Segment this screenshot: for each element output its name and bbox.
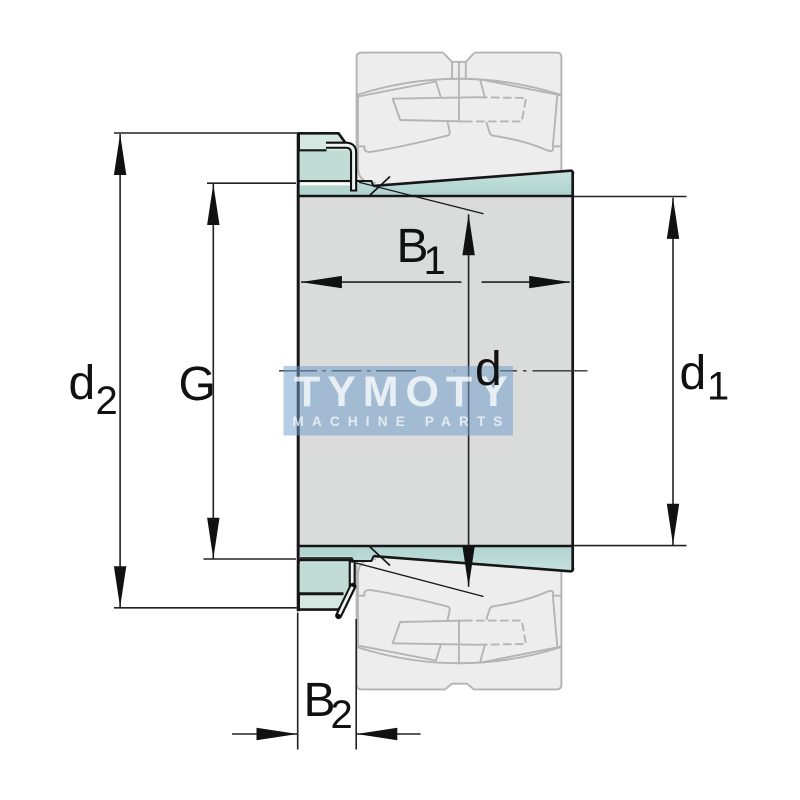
- svg-text:1: 1: [707, 365, 729, 409]
- svg-text:2: 2: [331, 693, 353, 737]
- svg-text:d: d: [475, 343, 502, 396]
- svg-text:d: d: [69, 357, 96, 410]
- svg-text:d: d: [680, 347, 707, 400]
- svg-text:G: G: [179, 358, 216, 411]
- svg-text:MACHINE PARTS: MACHINE PARTS: [293, 414, 511, 429]
- svg-text:2: 2: [96, 379, 118, 423]
- svg-text:1: 1: [424, 239, 446, 283]
